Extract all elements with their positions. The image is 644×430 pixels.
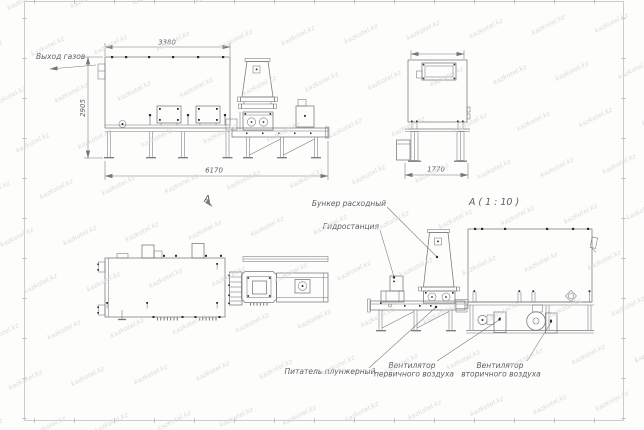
drawing-sheet: kazkotel.kz kazkotel.kz 3380 2905 6170 — [0, 0, 644, 430]
technical-drawing: kazkotel.kz kazkotel.kz 3380 2905 6170 — [0, 0, 644, 430]
watermark-overlay — [0, 0, 644, 430]
